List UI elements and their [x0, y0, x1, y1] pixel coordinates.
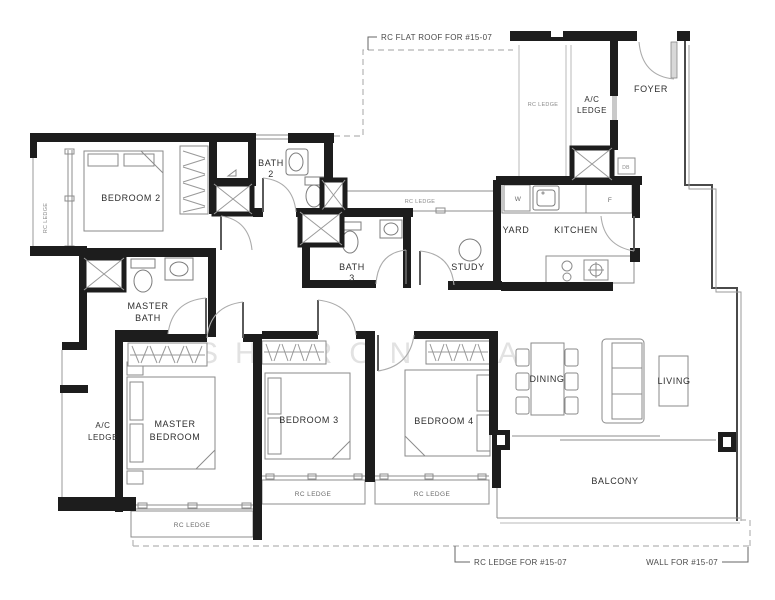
label-rc-ledge-left: RC LEDGE — [43, 203, 49, 234]
bath3-fixtures — [340, 220, 402, 253]
label-bedroom2: BEDROOM 2 — [101, 193, 160, 203]
label-bedroom4: BEDROOM 4 — [414, 416, 473, 426]
study-table — [459, 239, 481, 261]
label-bath3-1: BATH — [339, 262, 365, 272]
floor-plan: SHARON WAN — [0, 0, 775, 600]
door-bedroom3 — [318, 300, 356, 335]
label-master-bath-1: MASTER — [127, 301, 168, 311]
label-master-bath-2: BATH — [135, 313, 161, 323]
label-rc-ledge-for: RC LEDGE FOR #15-07 — [474, 558, 567, 567]
label-bath2-2: 2 — [268, 169, 274, 179]
door-bath2 — [263, 178, 296, 212]
shaft-icon — [300, 212, 342, 245]
door-bedroom2 — [221, 216, 252, 250]
label-db: DB — [622, 165, 630, 171]
shaft-icon — [572, 148, 612, 180]
label-wall-for: WALL FOR #15-07 — [646, 558, 718, 567]
label-foyer: FOYER — [634, 84, 668, 94]
label-kitchen: KITCHEN — [554, 225, 598, 235]
bed-bedroom4 — [405, 370, 490, 456]
label-rc-ledge-bed3: RC LEDGE — [295, 491, 332, 498]
label-study: STUDY — [451, 262, 485, 272]
label-rc-flat-roof: RC FLAT ROOF FOR #15-07 — [381, 33, 492, 42]
door-master-bath — [168, 298, 206, 334]
shaft-icon — [84, 258, 124, 290]
door-study — [420, 251, 454, 285]
label-balcony: BALCONY — [591, 476, 638, 486]
bed-bedroom2 — [84, 151, 163, 231]
balcony-post — [718, 432, 736, 452]
label-ac-left-2: LEDGE — [88, 433, 118, 442]
label-fridge: F — [608, 197, 612, 204]
wardrobe-bedroom4 — [426, 341, 490, 364]
wardrobe-bedroom3 — [262, 341, 326, 364]
label-living: LIVING — [657, 376, 690, 386]
label-ac-top-1: A/C — [584, 95, 599, 104]
kitchen-top-counter — [502, 183, 632, 213]
label-rc-ledge-mid: RC LEDGE — [405, 199, 436, 205]
label-rc-ledge-bed4: RC LEDGE — [414, 491, 451, 498]
label-ac-left-1: A/C — [95, 421, 110, 430]
label-washer: W — [515, 196, 522, 203]
wardrobe-master — [128, 343, 207, 366]
label-master-bedroom-2: BEDROOM — [150, 432, 201, 442]
door-foyer — [639, 42, 677, 79]
door-bath3 — [376, 250, 406, 284]
kitchen-bottom-counter — [546, 256, 634, 283]
balcony-post — [492, 430, 510, 450]
shaft-icon — [322, 180, 345, 210]
label-bedroom3: BEDROOM 3 — [279, 415, 338, 425]
door-kitchen — [601, 216, 634, 251]
wardrobe-bedroom2 — [180, 146, 208, 214]
label-rc-ledge-top: RC LEDGE — [528, 102, 559, 108]
floor-plan-drawing: SHARON WAN — [0, 0, 775, 600]
label-dining: DINING — [529, 374, 564, 384]
label-master-bedroom-1: MASTER — [154, 419, 195, 429]
label-bath2-1: BATH — [258, 158, 284, 168]
boundary-dashed — [133, 37, 750, 562]
label-bath3-2: 3 — [349, 273, 355, 283]
label-yard: YARD — [503, 225, 530, 235]
master-bath-fixtures — [131, 258, 193, 292]
label-ac-top-2: LEDGE — [577, 106, 607, 115]
sofa — [602, 339, 644, 423]
shaft-icon — [214, 184, 252, 214]
label-rc-ledge-master: RC LEDGE — [174, 522, 211, 529]
